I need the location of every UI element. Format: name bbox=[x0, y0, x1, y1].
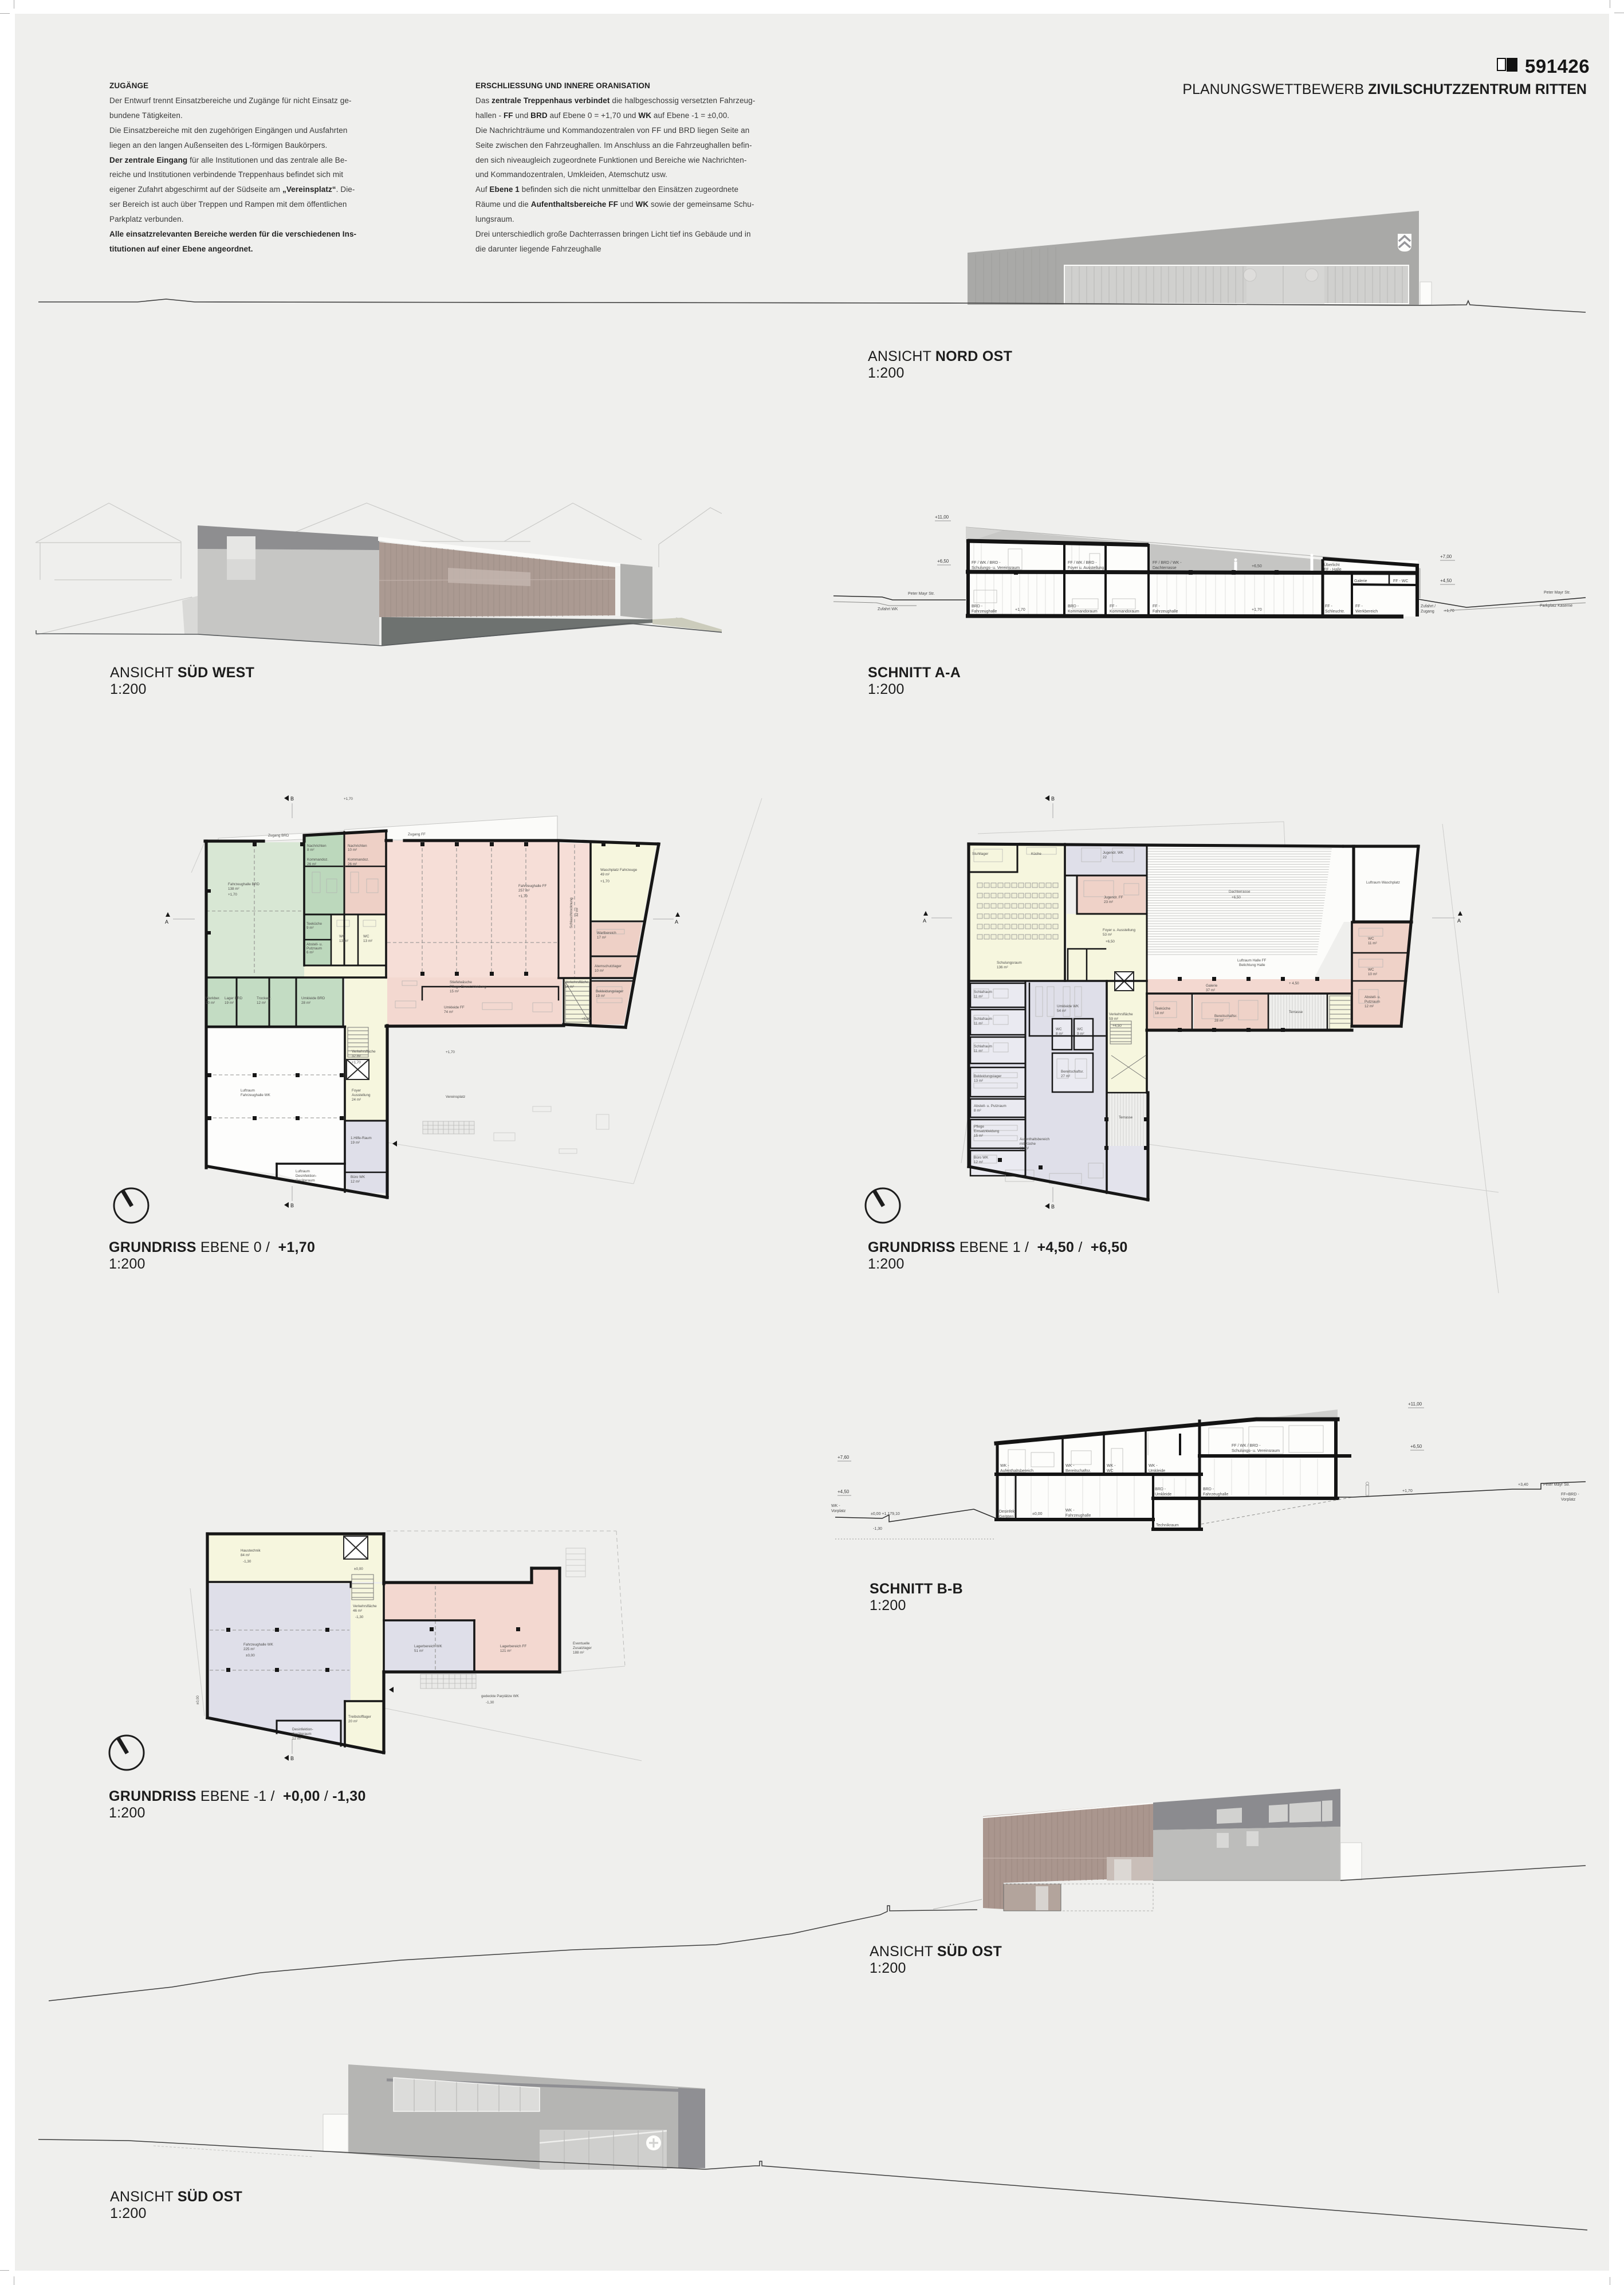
svg-text:+6,50: +6,50 bbox=[1410, 1444, 1422, 1449]
svg-text:Putzraum: Putzraum bbox=[306, 947, 322, 951]
svg-text:-1,30: -1,30 bbox=[486, 1701, 494, 1705]
svg-text:+11,00: +11,00 bbox=[1408, 1401, 1422, 1407]
svg-text:12 m²: 12 m² bbox=[351, 1180, 360, 1184]
svg-text:Trockenr.: Trockenr. bbox=[257, 996, 272, 1000]
svg-text:Wartbereich: Wartbereich bbox=[597, 931, 616, 935]
svg-text:Dachterrasse: Dachterrasse bbox=[1229, 890, 1251, 894]
svg-text:+1,70: +1,70 bbox=[344, 797, 353, 801]
svg-text:±0,00: ±0,00 bbox=[354, 1567, 363, 1571]
svg-text:23 m²: 23 m² bbox=[1104, 900, 1113, 904]
svg-text:+4,50: +4,50 bbox=[837, 1489, 850, 1494]
svg-text:Umkleide: Umkleide bbox=[1149, 1469, 1165, 1473]
svg-text:Abstell- u. Putzraum: Abstell- u. Putzraum bbox=[974, 1104, 1006, 1108]
svg-text:Schulungs- u. Vereinsraum: Schulungs- u. Vereinsraum bbox=[972, 566, 1020, 570]
svg-text:10 m²: 10 m² bbox=[206, 1001, 215, 1005]
svg-text:28 m²: 28 m² bbox=[301, 1001, 310, 1005]
svg-text:Verkehrsfläche: Verkehrsfläche bbox=[352, 1050, 376, 1054]
svg-text:32 m²: 32 m² bbox=[575, 908, 579, 917]
svg-text:Belichtung Halle: Belichtung Halle bbox=[1239, 963, 1265, 967]
svg-text:WC: WC bbox=[1056, 1027, 1062, 1031]
svg-text:8 m²: 8 m² bbox=[307, 848, 314, 852]
svg-text:10 m²: 10 m² bbox=[1368, 972, 1377, 976]
svg-text:Pflege: Pflege bbox=[974, 1125, 984, 1129]
svg-text:BRD -: BRD - bbox=[972, 604, 983, 608]
svg-text:Schlauchtrocknung: Schlauchtrocknung bbox=[569, 897, 573, 928]
svg-text:Galerie: Galerie bbox=[1354, 579, 1367, 583]
svg-text:24 m²: 24 m² bbox=[352, 1098, 361, 1102]
svg-text:Fahrzeughalle BRD: Fahrzeughalle BRD bbox=[228, 882, 259, 886]
svg-text:14 m²: 14 m² bbox=[565, 985, 574, 989]
svg-text:+1,70: +1,70 bbox=[1252, 608, 1262, 612]
svg-text:-1,30: -1,30 bbox=[243, 1560, 251, 1564]
svg-text:Bekleidungslager: Bekleidungslager bbox=[974, 1074, 1001, 1078]
svg-text:51 m²: 51 m² bbox=[414, 1649, 423, 1653]
svg-text:Vorplatz: Vorplatz bbox=[1561, 1498, 1576, 1502]
svg-text:15 m²: 15 m² bbox=[974, 1134, 983, 1138]
svg-text:+6,50: +6,50 bbox=[1252, 564, 1262, 568]
svg-text:+ 4,50: + 4,50 bbox=[1289, 981, 1299, 986]
svg-text:Kommandoraum: Kommandoraum bbox=[1068, 610, 1098, 614]
svg-text:WK -: WK - bbox=[1149, 1464, 1158, 1468]
svg-text:+4,50: +4,50 bbox=[1440, 578, 1452, 583]
svg-text:FF / WK / BRD -: FF / WK / BRD - bbox=[1232, 1444, 1261, 1448]
svg-text:Stiefelwäsche: Stiefelwäsche bbox=[450, 980, 472, 984]
svg-text:Stuhllager: Stuhllager bbox=[972, 852, 988, 856]
svg-text:A: A bbox=[1457, 918, 1461, 924]
svg-text:+1,70: +1,70 bbox=[600, 880, 610, 884]
svg-text:9 m²: 9 m² bbox=[1077, 1032, 1084, 1036]
svg-text:Nachrichten: Nachrichten bbox=[307, 844, 327, 848]
svg-text:19 m²: 19 m² bbox=[351, 1141, 360, 1145]
svg-text:8 m²: 8 m² bbox=[1056, 1032, 1063, 1036]
svg-text:Dachterrasse: Dachterrasse bbox=[1153, 566, 1177, 570]
svg-text:Zufahrt WK: Zufahrt WK bbox=[878, 607, 898, 611]
svg-text:15 m²: 15 m² bbox=[450, 990, 459, 994]
svg-text:WC: WC bbox=[1368, 968, 1374, 972]
svg-text:+1,70: +1,70 bbox=[1402, 1489, 1413, 1493]
svg-text:FF - Halle: FF - Halle bbox=[1324, 568, 1342, 572]
svg-text:+6,50: +6,50 bbox=[1106, 940, 1115, 944]
svg-text:32 m²: 32 m² bbox=[352, 1054, 361, 1058]
svg-text:6 m²: 6 m² bbox=[306, 951, 314, 955]
svg-text:13 m²: 13 m² bbox=[974, 1079, 983, 1083]
svg-text:FF -: FF - bbox=[1110, 604, 1117, 608]
svg-text:BRD -: BRD - bbox=[1155, 1487, 1166, 1491]
svg-text:Abstell- u.: Abstell- u. bbox=[1365, 995, 1381, 999]
svg-text:Zufahrt /: Zufahrt / bbox=[1421, 604, 1436, 608]
svg-text:Bereitschaftsr.: Bereitschaftsr. bbox=[1061, 1070, 1084, 1074]
svg-text:±0,00: ±0,00 bbox=[196, 1695, 200, 1705]
svg-text:Foyer: Foyer bbox=[352, 1089, 361, 1093]
svg-text:Putzraum: Putzraum bbox=[1365, 1000, 1380, 1004]
svg-text:Treibstofflager: Treibstofflager bbox=[348, 1715, 371, 1719]
svg-text:+6,50: +6,50 bbox=[1232, 896, 1241, 900]
svg-text:136 m²: 136 m² bbox=[997, 965, 1008, 969]
svg-text:27 m²: 27 m² bbox=[1061, 1074, 1070, 1078]
svg-text:225 m²: 225 m² bbox=[243, 1647, 255, 1651]
svg-text:18 m²: 18 m² bbox=[1155, 1011, 1164, 1015]
svg-text:Kommandoz.: Kommandoz. bbox=[307, 858, 328, 862]
svg-text:+6,50: +6,50 bbox=[937, 559, 949, 564]
svg-text:Überlicht: Überlicht bbox=[1324, 563, 1340, 567]
svg-text:28 m²: 28 m² bbox=[1214, 1019, 1224, 1023]
svg-text:WK -: WK - bbox=[1065, 1464, 1075, 1468]
svg-text:12 m²: 12 m² bbox=[1365, 1004, 1374, 1008]
svg-text:Zugang FF: Zugang FF bbox=[408, 833, 426, 837]
svg-text:12 m²: 12 m² bbox=[292, 1737, 301, 1741]
svg-text:A: A bbox=[923, 918, 926, 924]
svg-text:Fahrzeughalle: Fahrzeughalle bbox=[1203, 1493, 1228, 1497]
svg-text:46 m²: 46 m² bbox=[353, 1609, 362, 1613]
svg-text:12 m²: 12 m² bbox=[974, 1160, 983, 1164]
svg-text:Aufenthaltsbereich: Aufenthaltsbereich bbox=[1020, 1137, 1050, 1141]
svg-text:WC: WC bbox=[339, 935, 345, 939]
svg-text:Teeküche: Teeküche bbox=[306, 922, 322, 926]
svg-text:Lagerbereich WK: Lagerbereich WK bbox=[414, 1644, 442, 1648]
svg-text:+1,70: +1,70 bbox=[446, 1050, 455, 1054]
svg-text:Zugang BRD: Zugang BRD bbox=[268, 834, 289, 838]
svg-text:Aufenthaltsbereich: Aufenthaltsbereich bbox=[1000, 1469, 1033, 1473]
svg-text:13 m²: 13 m² bbox=[339, 939, 348, 943]
svg-text:10 m²: 10 m² bbox=[595, 969, 604, 973]
svg-text:BRD -: BRD - bbox=[1068, 604, 1079, 608]
svg-text:Schleuchtr.: Schleuchtr. bbox=[1325, 610, 1345, 614]
svg-text:Bereitschaftsr.: Bereitschaftsr. bbox=[1065, 1469, 1091, 1473]
svg-text:WC: WC bbox=[1107, 1469, 1114, 1473]
svg-text:Teeküche: Teeküche bbox=[1155, 1007, 1170, 1011]
svg-text:Ausstellung: Ausstellung bbox=[352, 1093, 371, 1097]
svg-text:Kommandoz.: Kommandoz. bbox=[348, 858, 369, 862]
svg-text:A: A bbox=[165, 919, 168, 925]
svg-text:59 m²: 59 m² bbox=[1109, 1017, 1118, 1021]
svg-text:Geräten: Geräten bbox=[999, 1515, 1013, 1519]
svg-text:Luftraum Halle FF: Luftraum Halle FF bbox=[1237, 959, 1267, 963]
svg-text:11 m²: 11 m² bbox=[974, 1049, 983, 1053]
svg-text:Peter Mayr Str.: Peter Mayr Str. bbox=[908, 592, 935, 596]
svg-text:Jugendr. FF: Jugendr. FF bbox=[1104, 896, 1123, 900]
svg-text:257 m²: 257 m² bbox=[518, 889, 530, 893]
svg-text:53 m²: 53 m² bbox=[1103, 933, 1112, 937]
svg-text:Fahrzeughalle WK: Fahrzeughalle WK bbox=[243, 1643, 274, 1647]
svg-text:138 m²: 138 m² bbox=[228, 887, 239, 891]
svg-text:11 m²: 11 m² bbox=[974, 995, 983, 999]
svg-text:Umkleide WK: Umkleide WK bbox=[1057, 1004, 1079, 1008]
svg-text:Luftraum: Luftraum bbox=[241, 1089, 255, 1093]
svg-text:Haustechnik: Haustechnik bbox=[241, 1549, 261, 1553]
svg-text:20 m²: 20 m² bbox=[348, 1719, 357, 1723]
svg-text:Bereitschaftsr.: Bereitschaftsr. bbox=[1214, 1014, 1237, 1018]
svg-text:Peter Mayr Str.: Peter Mayr Str. bbox=[1543, 1483, 1570, 1487]
svg-text:Luftraum: Luftraum bbox=[296, 1169, 310, 1173]
svg-text:Vereinsplatz: Vereinsplatz bbox=[446, 1095, 465, 1099]
svg-text:49 m²: 49 m² bbox=[600, 873, 610, 877]
svg-text:B: B bbox=[290, 1203, 294, 1208]
svg-text:B: B bbox=[1051, 1204, 1055, 1210]
svg-text:82 m²: 82 m² bbox=[1020, 1147, 1029, 1151]
svg-text:±0,00: ±0,00 bbox=[1032, 1512, 1043, 1516]
svg-text:Waschplatz Fahrzeuge: Waschplatz Fahrzeuge bbox=[600, 868, 638, 872]
svg-text:FF / WK / BRD -: FF / WK / BRD - bbox=[972, 561, 1001, 565]
svg-text:BRD -: BRD - bbox=[1203, 1487, 1214, 1491]
svg-text:+11,00: +11,00 bbox=[935, 515, 949, 520]
svg-text:Desinfektion-: Desinfektion- bbox=[292, 1728, 313, 1732]
svg-text:FF / WK / BRD -: FF / WK / BRD - bbox=[1068, 561, 1097, 565]
svg-text:Abstell- u.: Abstell- u. bbox=[306, 943, 323, 947]
svg-text:84 m²: 84 m² bbox=[241, 1553, 250, 1557]
svg-text:Schulungsraum: Schulungsraum bbox=[997, 961, 1022, 965]
svg-text:Schlafraum: Schlafraum bbox=[974, 1017, 992, 1021]
svg-text:26 m²: 26 m² bbox=[348, 862, 357, 866]
svg-text:Peter Mayr Str.: Peter Mayr Str. bbox=[1544, 591, 1571, 595]
svg-text:Parkplatz Kaserne: Parkplatz Kaserne bbox=[1540, 604, 1572, 608]
svg-text:+7,60: +7,60 bbox=[837, 1455, 850, 1460]
svg-text:Schulungs- u. Vereinsraum: Schulungs- u. Vereinsraum bbox=[1232, 1449, 1280, 1453]
svg-text:Nachrichten: Nachrichten bbox=[348, 844, 367, 848]
svg-text:Verkehrsfläche: Verkehrsfläche bbox=[1109, 1012, 1133, 1016]
svg-text:Umkleide: Umkleide bbox=[1155, 1493, 1171, 1497]
svg-text:FF - WC: FF - WC bbox=[1393, 579, 1408, 583]
svg-text:8 m²: 8 m² bbox=[974, 1109, 981, 1113]
svg-text:Umkleide BRD: Umkleide BRD bbox=[301, 996, 325, 1000]
svg-text:Verkehrsfläche: Verkehrsfläche bbox=[353, 1604, 377, 1608]
svg-text:+1,70: +1,70 bbox=[352, 1061, 361, 1065]
svg-text:FF+BRD -: FF+BRD - bbox=[1561, 1493, 1579, 1497]
svg-text:Lager BRD: Lager BRD bbox=[225, 996, 243, 1000]
svg-text:188 m²: 188 m² bbox=[573, 1651, 584, 1655]
svg-text:Galerie: Galerie bbox=[1206, 984, 1218, 988]
svg-text:Umkleide FF: Umkleide FF bbox=[444, 1006, 465, 1010]
svg-text:37 m²: 37 m² bbox=[1206, 988, 1215, 992]
svg-text:Foyer u. Ausstellung: Foyer u. Ausstellung bbox=[1103, 928, 1136, 932]
svg-text:B: B bbox=[290, 796, 294, 802]
svg-text:Lagerbereich FF: Lagerbereich FF bbox=[500, 1644, 526, 1648]
svg-text:Atemschutzlager: Atemschutzlager bbox=[595, 964, 622, 968]
svg-text:Werkbereich: Werkbereich bbox=[1355, 610, 1378, 614]
svg-text:Schlafraum: Schlafraum bbox=[974, 990, 992, 994]
svg-text:Zusatzlager: Zusatzlager bbox=[573, 1646, 592, 1650]
svg-text:11 m²: 11 m² bbox=[974, 1022, 983, 1026]
svg-text:±0,00: ±0,00 bbox=[246, 1654, 255, 1658]
svg-text:121 m²: 121 m² bbox=[500, 1649, 512, 1653]
svg-text:WC: WC bbox=[363, 935, 369, 939]
svg-text:mit Küche: mit Küche bbox=[1020, 1142, 1036, 1146]
svg-text:Zugang: Zugang bbox=[1421, 610, 1434, 614]
svg-text:A: A bbox=[675, 919, 678, 925]
svg-text:+1,70: +1,70 bbox=[518, 894, 528, 898]
svg-text:22: 22 bbox=[1103, 855, 1107, 859]
svg-text:13 m²: 13 m² bbox=[363, 939, 372, 943]
svg-text:Küche: Küche bbox=[1031, 852, 1041, 856]
svg-text:Fahrzeughalle: Fahrzeughalle bbox=[972, 610, 997, 614]
svg-text:19 m²: 19 m² bbox=[596, 994, 605, 998]
svg-text:Bekleidungslager: Bekleidungslager bbox=[596, 990, 623, 994]
svg-text:Technikraum: Technikraum bbox=[1156, 1524, 1179, 1528]
svg-text:Fahrzeughalle: Fahrzeughalle bbox=[1065, 1514, 1091, 1518]
svg-text:+3,40: +3,40 bbox=[1518, 1483, 1528, 1487]
svg-text:Schlafraum: Schlafraum bbox=[974, 1045, 992, 1049]
svg-text:Fahrzeughalle: Fahrzeughalle bbox=[1153, 610, 1178, 614]
svg-text:Foyer u. Ausstellung: Foyer u. Ausstellung bbox=[1068, 566, 1104, 570]
svg-text:17 m²: 17 m² bbox=[597, 936, 606, 940]
svg-text:74 m²: 74 m² bbox=[444, 1010, 453, 1014]
svg-text:Einsatzkleidung: Einsatzkleidung bbox=[974, 1129, 1000, 1133]
svg-text:-1,30: -1,30 bbox=[355, 1615, 364, 1619]
svg-text:±0,00 +1.179,10: ±0,00 +1.179,10 bbox=[871, 1512, 900, 1516]
svg-text:WK -: WK - bbox=[831, 1504, 840, 1508]
svg-text:+1,70: +1,70 bbox=[1015, 608, 1025, 612]
svg-text:FF -: FF - bbox=[1355, 604, 1363, 608]
svg-text:FF / BRD / WK -: FF / BRD / WK - bbox=[1153, 561, 1182, 565]
svg-text:Büro WK: Büro WK bbox=[974, 1156, 989, 1160]
svg-text:Verkehrsfläche: Verkehrsfläche bbox=[565, 980, 589, 984]
svg-text:11 m²: 11 m² bbox=[1368, 941, 1377, 945]
svg-text:1.Hilfe-Raum: 1.Hilfe-Raum bbox=[351, 1136, 372, 1140]
svg-text:Pflege Einsatzkleidung: Pflege Einsatzkleidung bbox=[450, 985, 486, 989]
svg-text:B: B bbox=[290, 1756, 294, 1761]
svg-text:+0,20: +0,20 bbox=[581, 1017, 591, 1021]
svg-text:WK -: WK - bbox=[1065, 1509, 1075, 1513]
svg-text:FF -: FF - bbox=[1325, 604, 1332, 608]
svg-text:Geräteraum: Geräteraum bbox=[292, 1732, 312, 1736]
svg-text:+4,50: +4,50 bbox=[1112, 1024, 1122, 1028]
svg-text:Terrasse: Terrasse bbox=[1119, 1116, 1133, 1120]
svg-text:Vorplatz: Vorplatz bbox=[831, 1509, 846, 1513]
svg-text:9 m²: 9 m² bbox=[306, 926, 314, 930]
svg-text:Fahrzeughalle FF: Fahrzeughalle FF bbox=[518, 884, 547, 888]
svg-text:Büro WK: Büro WK bbox=[351, 1175, 365, 1179]
svg-text:Desinfek.: Desinfek. bbox=[999, 1510, 1016, 1514]
svg-text:Fahrzeughalle WK: Fahrzeughalle WK bbox=[241, 1093, 271, 1097]
svg-text:gedeckte Parplätze WK: gedeckte Parplätze WK bbox=[481, 1694, 520, 1698]
svg-text:Desinfektion-: Desinfektion- bbox=[296, 1174, 317, 1178]
svg-text:+1,70: +1,70 bbox=[228, 893, 237, 897]
svg-text:B: B bbox=[1051, 796, 1055, 802]
svg-text:WC: WC bbox=[1368, 937, 1374, 941]
svg-text:Kommandoraum: Kommandoraum bbox=[1110, 610, 1139, 614]
svg-text:Werkber.: Werkber. bbox=[206, 996, 220, 1000]
svg-text:+1,70: +1,70 bbox=[1444, 609, 1454, 613]
svg-text:26 m²: 26 m² bbox=[307, 862, 316, 866]
svg-text:Geräteraum: Geräteraum bbox=[296, 1179, 315, 1183]
svg-text:WK -: WK - bbox=[1107, 1464, 1116, 1468]
svg-text:-1,30: -1,30 bbox=[873, 1527, 882, 1531]
svg-text:FF -: FF - bbox=[1153, 604, 1160, 608]
svg-text:Terrasse: Terrasse bbox=[1289, 1010, 1303, 1014]
svg-text:WK -: WK - bbox=[1000, 1464, 1009, 1468]
svg-text:54 m²: 54 m² bbox=[1057, 1009, 1066, 1013]
svg-text:WC: WC bbox=[1077, 1027, 1083, 1031]
svg-text:+7,00: +7,00 bbox=[1440, 554, 1452, 559]
svg-text:10 m²: 10 m² bbox=[348, 848, 357, 852]
svg-text:Luftraum Waschplatz: Luftraum Waschplatz bbox=[1366, 881, 1400, 885]
svg-text:12 m²: 12 m² bbox=[257, 1001, 266, 1005]
svg-text:19 m²: 19 m² bbox=[225, 1001, 234, 1005]
svg-text:Jugendr. WK: Jugendr. WK bbox=[1103, 851, 1124, 855]
svg-text:Eventuelle: Eventuelle bbox=[573, 1642, 590, 1646]
